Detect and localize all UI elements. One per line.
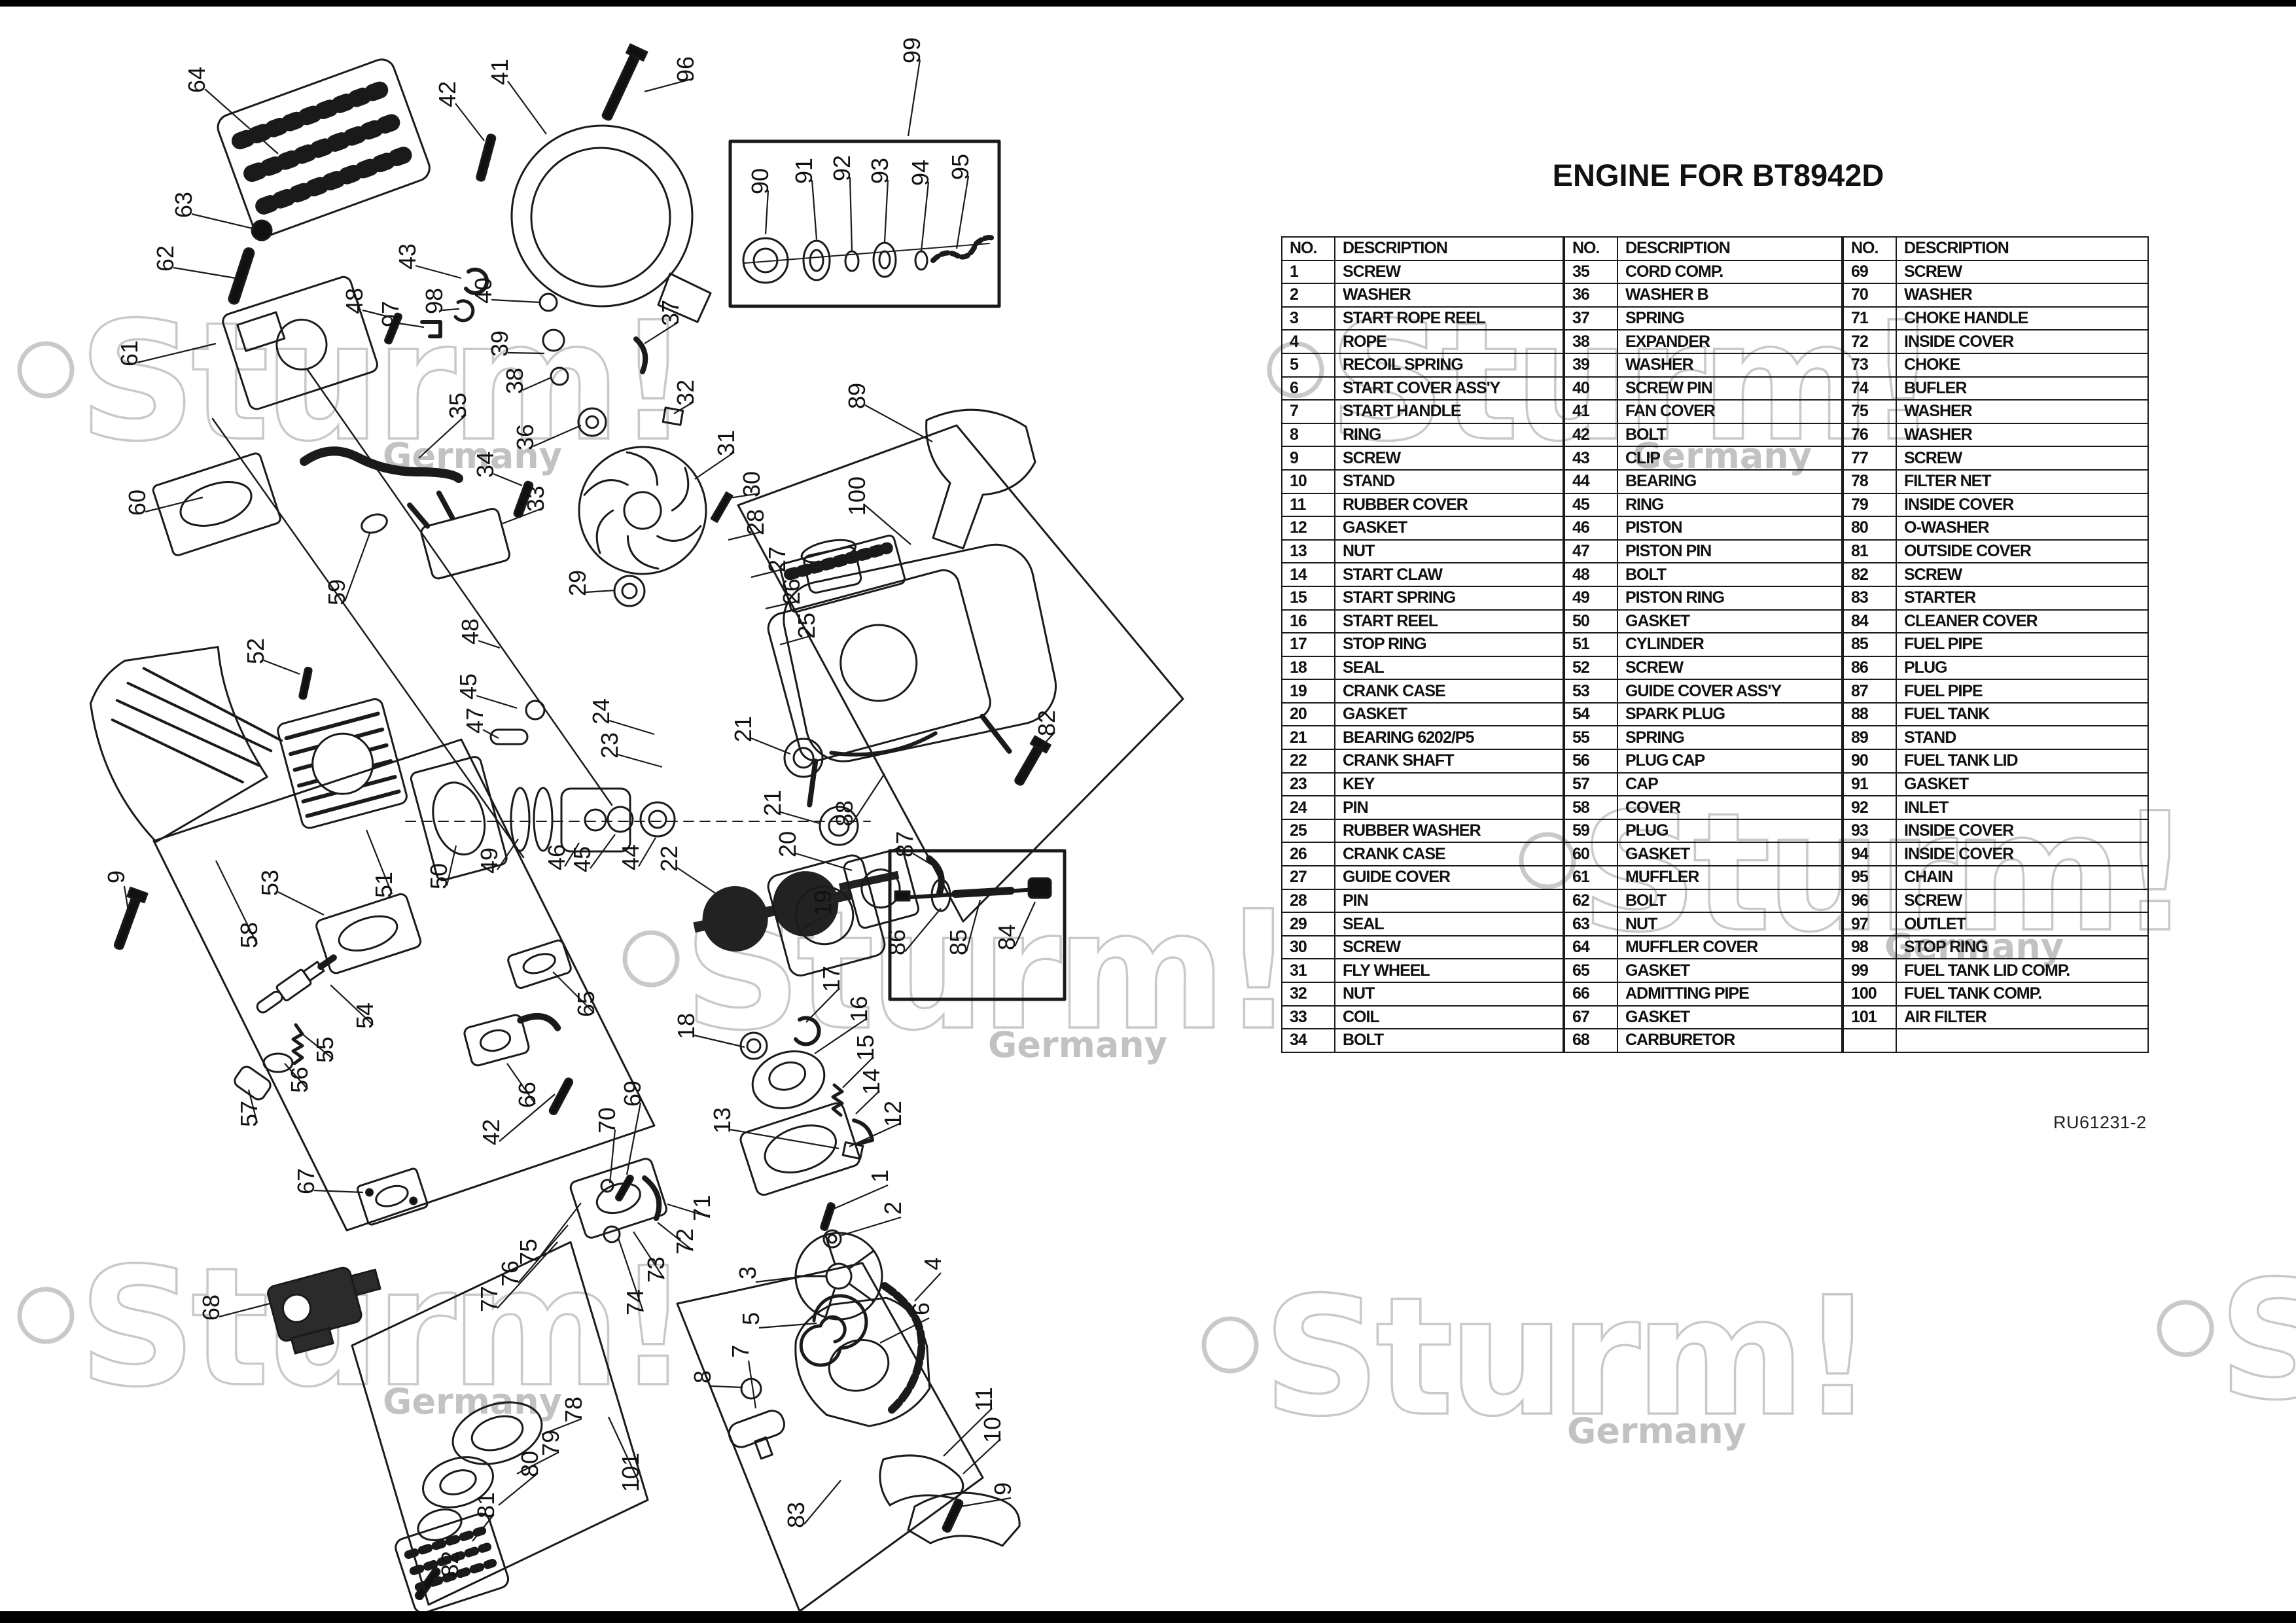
cell-description: COIL xyxy=(1335,1006,1563,1029)
cell-description: INSIDE COVER xyxy=(1896,819,2148,843)
callout-60: 60 xyxy=(124,490,150,516)
cell-description: OUTSIDE COVER xyxy=(1896,540,2148,563)
leader-line xyxy=(841,1217,901,1236)
callout-23: 23 xyxy=(596,732,623,758)
callout-69: 69 xyxy=(619,1080,646,1107)
cell-no: 40 xyxy=(1564,377,1617,401)
table-row: 86PLUG xyxy=(1843,656,2148,680)
cell-no: 69 xyxy=(1843,260,1896,284)
cell-no: 47 xyxy=(1564,540,1617,563)
callout-82: 82 xyxy=(1033,710,1060,736)
cell-description: SCREW PIN xyxy=(1617,377,1842,401)
cell-description: RING xyxy=(1335,423,1563,447)
callout-29: 29 xyxy=(564,570,591,596)
table-row: 38EXPANDER xyxy=(1564,330,1842,353)
table-row: 6START COVER ASS'Y xyxy=(1282,377,1563,401)
cell-description: CLEANER COVER xyxy=(1896,610,2148,633)
cell-description: INLET xyxy=(1896,796,2148,819)
cell-no: 34 xyxy=(1282,1029,1335,1052)
cell-no: 91 xyxy=(1843,773,1896,796)
callout-95: 95 xyxy=(947,154,974,180)
cell-no: 19 xyxy=(1282,679,1335,703)
cell-description: O-WASHER xyxy=(1896,516,2148,540)
cell-description: KEY xyxy=(1335,773,1563,796)
cell-description: SPRING xyxy=(1617,726,1842,749)
cell-description: FUEL TANK LID xyxy=(1896,749,2148,773)
table-row: 17STOP RING xyxy=(1282,633,1563,656)
callout-6: 6 xyxy=(908,1302,934,1315)
cell-no: 38 xyxy=(1564,330,1617,353)
cell-no: 64 xyxy=(1564,936,1617,959)
leader-line xyxy=(610,1130,615,1183)
leader-line xyxy=(677,868,718,895)
leader-line xyxy=(618,755,662,767)
callout-33: 33 xyxy=(522,486,549,512)
cell-no: 81 xyxy=(1843,540,1896,563)
callout-4: 4 xyxy=(919,1257,946,1270)
inset-fuel-pickup xyxy=(890,851,1065,999)
callout-12: 12 xyxy=(879,1101,906,1127)
cell-no: 71 xyxy=(1843,307,1896,330)
table-row: 12GASKET xyxy=(1282,516,1563,540)
part-seal-29 xyxy=(614,576,645,606)
cell-description: CYLINDER xyxy=(1617,633,1842,656)
cell-description: STOP RING xyxy=(1896,936,2148,959)
cell-no: 89 xyxy=(1843,726,1896,749)
cell-no: 74 xyxy=(1843,377,1896,401)
leader-line xyxy=(499,1473,538,1505)
cell-no: 52 xyxy=(1564,656,1617,680)
table-row: 39WASHER xyxy=(1564,353,1842,377)
table-row: 47PISTON PIN xyxy=(1564,540,1842,563)
callout-72: 72 xyxy=(671,1228,698,1255)
leader-line xyxy=(957,176,968,249)
cell-description: ROPE xyxy=(1335,330,1563,353)
cell-description: INSIDE COVER xyxy=(1896,493,2148,517)
table-row: 1SCREW xyxy=(1282,260,1563,284)
cell-no: 96 xyxy=(1843,889,1896,913)
cell-description: WASHER B xyxy=(1617,283,1842,307)
leader-line xyxy=(921,182,928,251)
callout-63: 63 xyxy=(170,192,197,218)
callout-22: 22 xyxy=(656,846,682,872)
part-start-spring-15 xyxy=(833,1085,842,1115)
table-row: 29SEAL xyxy=(1282,912,1563,936)
table-row: 61MUFFLER xyxy=(1564,866,1842,889)
page-bottom-border xyxy=(0,1611,2296,1623)
table-row: 76WASHER xyxy=(1843,423,2148,447)
part-gasket-60 xyxy=(152,452,281,557)
leader-line xyxy=(908,60,920,136)
panel-fuel-tank xyxy=(738,425,1183,921)
table-row: 90FUEL TANK LID xyxy=(1843,749,2148,773)
cell-description: PLUG xyxy=(1617,819,1842,843)
part-piston-46 xyxy=(561,789,630,851)
table-row: 26CRANK CASE xyxy=(1282,842,1563,866)
cell-description: GASKET xyxy=(1617,610,1842,633)
part-flywheel xyxy=(565,433,720,588)
table-header-row: NO.DESCRIPTION xyxy=(1282,237,1563,260)
table-row: 87FUEL PIPE xyxy=(1843,679,2148,703)
cell-description: NUT xyxy=(1335,540,1563,563)
table-row: 36WASHER B xyxy=(1564,283,1842,307)
table-row: 50GASKET xyxy=(1564,610,1842,633)
part-carburetor xyxy=(266,1260,391,1357)
table-row: 16START REEL xyxy=(1282,610,1563,633)
callout-89: 89 xyxy=(843,383,870,409)
leader-line xyxy=(961,1498,1011,1507)
leader-line xyxy=(759,1323,817,1328)
table-row: 31FLY WHEEL xyxy=(1282,959,1563,982)
cell-description: SCREW xyxy=(1335,446,1563,470)
table-row: 46PISTON xyxy=(1564,516,1842,540)
parts-table-group-1: NO.DESCRIPTION1SCREW2WASHER3START ROPE R… xyxy=(1281,236,1564,1053)
cell-no: 31 xyxy=(1282,959,1335,982)
cell-description: FILTER NET xyxy=(1896,470,2148,493)
callout-7: 7 xyxy=(727,1345,754,1358)
cell-no: 13 xyxy=(1282,540,1335,563)
callout-16: 16 xyxy=(845,996,872,1022)
cell-description: FUEL TANK xyxy=(1896,703,2148,726)
part-screw-9 xyxy=(109,887,147,952)
cell-description: SEAL xyxy=(1335,656,1563,680)
cell-no: 66 xyxy=(1564,982,1617,1006)
part-expander-38 xyxy=(551,368,568,385)
table-row: 53GUIDE COVER ASS'Y xyxy=(1564,679,1842,703)
callout-13: 13 xyxy=(709,1107,735,1133)
cell-no: 20 xyxy=(1282,703,1335,726)
table-row: 93INSIDE COVER xyxy=(1843,819,2148,843)
cell-no: 45 xyxy=(1564,493,1617,517)
table-row: 91GASKET xyxy=(1843,773,2148,796)
cell-description: BEARING 6202/P5 xyxy=(1335,726,1563,749)
table-row: 44BEARING xyxy=(1564,470,1842,493)
callout-66: 66 xyxy=(514,1082,540,1108)
cell-description: START HANDLE xyxy=(1335,400,1563,423)
callout-35: 35 xyxy=(444,393,471,419)
cell-no: 16 xyxy=(1282,610,1335,633)
table-row: 8RING xyxy=(1282,423,1563,447)
cell-no: 15 xyxy=(1282,586,1335,610)
callout-17: 17 xyxy=(818,966,845,992)
cell-no: 99 xyxy=(1843,959,1896,982)
table-row: 21BEARING 6202/P5 xyxy=(1282,726,1563,749)
table-row: 23KEY xyxy=(1282,773,1563,796)
cell-description: PISTON PIN xyxy=(1617,540,1842,563)
table-row: 81OUTSIDE COVER xyxy=(1843,540,2148,563)
table-row: 28PIN xyxy=(1282,889,1563,913)
cell-no: 17 xyxy=(1282,633,1335,656)
cell-no: 22 xyxy=(1282,749,1335,773)
cell-no: 6 xyxy=(1282,377,1335,401)
cell-no: 65 xyxy=(1564,959,1617,982)
cell-description: GASKET xyxy=(1335,516,1563,540)
table-row: 2WASHER xyxy=(1282,283,1563,307)
cell-description: FUEL TANK COMP. xyxy=(1896,982,2148,1006)
part-spring-55 xyxy=(293,1025,302,1063)
table-row: 35CORD COMP. xyxy=(1564,260,1842,284)
cell-no: 100 xyxy=(1843,982,1896,1006)
leader-line xyxy=(508,81,546,134)
cell-no: 72 xyxy=(1843,330,1896,353)
cell-description: PLUG xyxy=(1896,656,2148,680)
cell-no: 53 xyxy=(1564,679,1617,703)
cell-description: BOLT xyxy=(1617,889,1842,913)
cell-description: MUFFLER COVER xyxy=(1617,936,1842,959)
callout-85: 85 xyxy=(945,929,972,955)
cell-description: CHOKE HANDLE xyxy=(1896,307,2148,330)
callout-61: 61 xyxy=(116,340,143,366)
document-code: RU61231-2 xyxy=(1963,1113,2155,1133)
cell-description: PLUG CAP xyxy=(1617,749,1842,773)
leader-line xyxy=(173,268,236,278)
callout-53: 53 xyxy=(256,870,283,896)
cell-no: 97 xyxy=(1843,912,1896,936)
table-row: 66ADMITTING PIPE xyxy=(1564,982,1842,1006)
part-piston-ring-49b xyxy=(534,788,552,851)
table-row: 11RUBBER COVER xyxy=(1282,493,1563,517)
leader-line xyxy=(508,353,544,353)
table-row: 19CRANK CASE xyxy=(1282,679,1563,703)
part-coil-33 xyxy=(409,480,511,581)
cell-description: BEARING xyxy=(1617,470,1842,493)
cell-description: BOLT xyxy=(1617,563,1842,586)
table-row: 75WASHER xyxy=(1843,400,2148,423)
cell-description: CHOKE xyxy=(1896,353,2148,377)
table-row: 62BOLT xyxy=(1564,889,1842,913)
callout-65: 65 xyxy=(573,991,599,1017)
table-row: 20GASKET xyxy=(1282,703,1563,726)
part-washer-36 xyxy=(578,408,606,436)
callout-80: 80 xyxy=(516,1451,543,1477)
leader-line xyxy=(751,738,790,754)
cell-no: 82 xyxy=(1843,563,1896,586)
cell-description: GASKET xyxy=(1896,773,2148,796)
callout-98: 98 xyxy=(421,288,448,314)
callout-39: 39 xyxy=(486,330,513,357)
table-row: 89STAND xyxy=(1843,726,2148,749)
cell-description: COVER xyxy=(1617,796,1842,819)
cell-no: 14 xyxy=(1282,563,1335,586)
cell-no: 67 xyxy=(1564,1006,1617,1029)
part-screw-52 xyxy=(299,667,312,699)
callout-43: 43 xyxy=(394,243,421,270)
callout-25: 25 xyxy=(793,613,820,639)
cell-description: OUTLET xyxy=(1896,912,2148,936)
parts-table: NO.DESCRIPTION1SCREW2WASHER3START ROPE R… xyxy=(1281,236,2155,1053)
table-row: 63NUT xyxy=(1564,912,1842,936)
part-plug-59 xyxy=(359,511,389,536)
table-row: 10STAND xyxy=(1282,470,1563,493)
callout-51: 51 xyxy=(370,872,397,898)
table-row: 83STARTER xyxy=(1843,586,2148,610)
callout-26: 26 xyxy=(778,579,805,605)
cell-no: 98 xyxy=(1843,936,1896,959)
cell-no: 76 xyxy=(1843,423,1896,447)
table-row: 100FUEL TANK COMP. xyxy=(1843,982,2148,1006)
cell-no: NO. xyxy=(1843,237,1896,260)
callout-28: 28 xyxy=(742,509,769,535)
part-spark-plug xyxy=(253,950,338,1017)
callout-38: 38 xyxy=(501,368,528,394)
table-row: 79INSIDE COVER xyxy=(1843,493,2148,517)
callout-78: 78 xyxy=(560,1397,587,1423)
part-ring-45b xyxy=(608,807,633,832)
table-row: 49PISTON RING xyxy=(1564,586,1842,610)
part-fan-cover xyxy=(512,126,711,322)
cell-no: 12 xyxy=(1282,516,1335,540)
cell-description: CRANK CASE xyxy=(1335,679,1563,703)
cell-description: START REEL xyxy=(1335,610,1563,633)
table-row: 56PLUG CAP xyxy=(1564,749,1842,773)
table-row: 85FUEL PIPE xyxy=(1843,633,2148,656)
cell-no: 42 xyxy=(1564,423,1617,447)
page-top-border xyxy=(0,0,2296,7)
cell-description: START COVER ASS'Y xyxy=(1335,377,1563,401)
callout-50: 50 xyxy=(425,863,452,889)
part-bearing-21a xyxy=(785,739,822,777)
callout-30: 30 xyxy=(738,471,765,497)
cell-description: STAND xyxy=(1335,470,1563,493)
part-outlet-97 xyxy=(422,322,440,336)
callout-48: 48 xyxy=(341,288,368,314)
cell-no: 75 xyxy=(1843,400,1896,423)
cell-description: SCREW xyxy=(1896,889,2148,913)
part-screw-1 xyxy=(821,1202,835,1230)
callout-86: 86 xyxy=(883,929,910,955)
callout-71: 71 xyxy=(688,1195,715,1221)
cell-description: GASKET xyxy=(1617,1006,1842,1029)
table-header-row: NO.DESCRIPTION xyxy=(1843,237,2148,260)
cell-no: 43 xyxy=(1564,446,1617,470)
callout-9: 9 xyxy=(103,870,130,883)
table-row: 96SCREW xyxy=(1843,889,2148,913)
cell-description: CRANK CASE xyxy=(1335,842,1563,866)
cell-no: 51 xyxy=(1564,633,1617,656)
callout-3: 3 xyxy=(734,1266,761,1279)
part-muffler-cover xyxy=(214,56,433,240)
cell-no: 30 xyxy=(1282,936,1335,959)
cell-no: 23 xyxy=(1282,773,1335,796)
cell-no: 29 xyxy=(1282,912,1335,936)
leader-line xyxy=(865,405,932,442)
cell-description: CORD COMP. xyxy=(1617,260,1842,284)
table-row: 80O-WASHER xyxy=(1843,516,2148,540)
table-row: 41FAN COVER xyxy=(1564,400,1842,423)
part-piston-ring-49a xyxy=(511,788,529,851)
callout-5: 5 xyxy=(737,1312,764,1325)
callout-59: 59 xyxy=(323,579,350,605)
cell-no: 59 xyxy=(1564,819,1617,843)
cell-no: 84 xyxy=(1843,610,1896,633)
cell-no: NO. xyxy=(1564,237,1617,260)
callout-84: 84 xyxy=(993,924,1020,950)
part-screw-30 xyxy=(711,493,732,522)
cell-no: 86 xyxy=(1843,656,1896,680)
cell-no: 55 xyxy=(1564,726,1617,749)
cell-no: 87 xyxy=(1843,679,1896,703)
callout-83: 83 xyxy=(783,1502,809,1528)
cell-no: 94 xyxy=(1843,842,1896,866)
callout-21: 21 xyxy=(730,716,756,742)
callout-70: 70 xyxy=(593,1107,620,1133)
cell-no: 10 xyxy=(1282,470,1335,493)
table-row: 7START HANDLE xyxy=(1282,400,1563,423)
part-gasket-67 xyxy=(357,1168,429,1225)
leader-line xyxy=(963,1439,1000,1474)
table-row: 99FUEL TANK LID COMP. xyxy=(1843,959,2148,982)
callout-45: 45 xyxy=(569,846,595,872)
leader-line xyxy=(278,892,324,915)
cell-no: 44 xyxy=(1564,470,1617,493)
callout-21: 21 xyxy=(759,790,786,816)
cell-no: 39 xyxy=(1564,353,1617,377)
part-spring-37 xyxy=(636,339,645,372)
cell-description: FUEL PIPE xyxy=(1896,633,2148,656)
leader-line xyxy=(812,180,817,240)
callout-31: 31 xyxy=(713,430,739,456)
cell-description: CHAIN xyxy=(1896,866,2148,889)
callout-74: 74 xyxy=(622,1289,648,1315)
table-row: 5RECOIL SPRING xyxy=(1282,353,1563,377)
leader-line xyxy=(749,1361,756,1408)
cell-description: EXPANDER xyxy=(1617,330,1842,353)
leader-line xyxy=(850,177,852,251)
leader-line xyxy=(476,696,517,708)
cell-description: DESCRIPTION xyxy=(1617,237,1842,260)
cell-description: SCREW xyxy=(1896,260,2148,284)
leader-line xyxy=(806,988,839,1022)
cell-description: SCREW xyxy=(1335,260,1563,284)
callout-11: 11 xyxy=(970,1387,997,1411)
cell-no: 2 xyxy=(1282,283,1335,307)
callout-18: 18 xyxy=(673,1013,699,1039)
cell-no: 3 xyxy=(1282,307,1335,330)
callout-93: 93 xyxy=(866,158,893,184)
cell-no: 41 xyxy=(1564,400,1617,423)
cell-no: 63 xyxy=(1564,912,1617,936)
cell-description: START ROPE REEL xyxy=(1335,307,1563,330)
cell-description: CLIP xyxy=(1617,446,1842,470)
part-bolt-62 xyxy=(228,247,255,305)
callout-58: 58 xyxy=(236,922,262,948)
cell-no: 11 xyxy=(1282,493,1335,517)
cell-description: AIR FILTER xyxy=(1896,1006,2148,1029)
panel-starter xyxy=(677,1263,983,1611)
cell-description: BUFLER xyxy=(1896,377,2148,401)
callout-94: 94 xyxy=(907,160,934,186)
callout-81: 81 xyxy=(472,1492,499,1518)
table-row: 27GUIDE COVER xyxy=(1282,866,1563,889)
cell-description: RUBBER COVER xyxy=(1335,493,1563,517)
callout-49: 49 xyxy=(476,847,503,874)
cell-description: SPRING xyxy=(1617,307,1842,330)
callout-91: 91 xyxy=(790,158,817,184)
cell-no: 56 xyxy=(1564,749,1617,773)
table-row: 84CLEANER COVER xyxy=(1843,610,2148,633)
cell-no: 35 xyxy=(1564,260,1617,284)
table-row: 43CLIP xyxy=(1564,446,1842,470)
leader-line xyxy=(415,266,461,278)
callout-57: 57 xyxy=(236,1101,262,1127)
cell-no: 92 xyxy=(1843,796,1896,819)
cell-description: FUEL TANK LID COMP. xyxy=(1896,959,2148,982)
cell-description: DESCRIPTION xyxy=(1896,237,2148,260)
parts-table-group-3: NO.DESCRIPTION69SCREW70WASHER71CHOKE HAN… xyxy=(1843,236,2149,1053)
cell-description: WASHER xyxy=(1896,400,2148,423)
part-bearing-44 xyxy=(641,802,675,836)
cell-no: 79 xyxy=(1843,493,1896,517)
